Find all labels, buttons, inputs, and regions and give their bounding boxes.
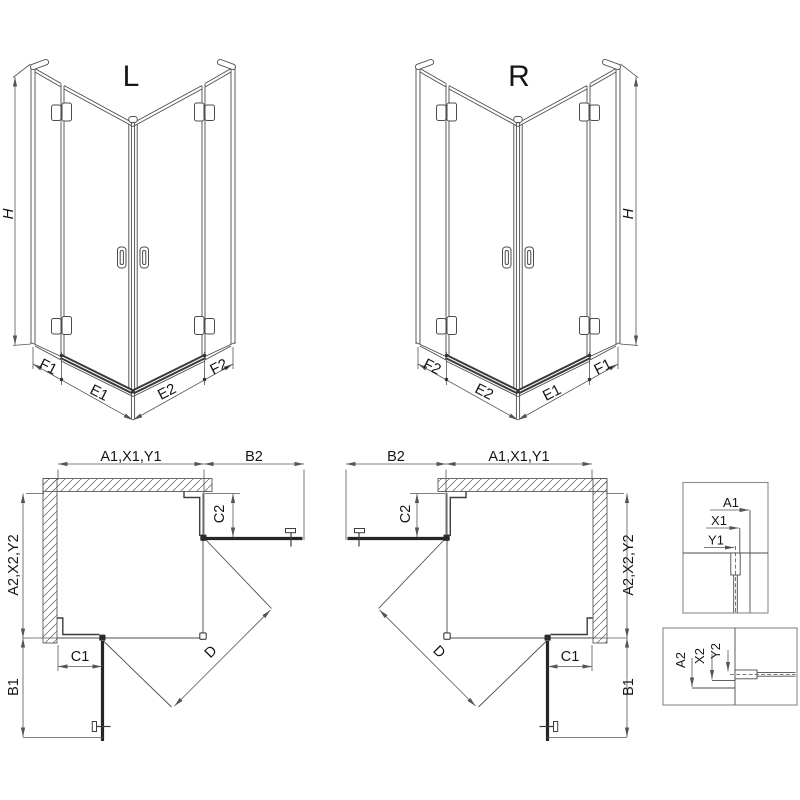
dim-label-f1-left: F1 bbox=[36, 355, 59, 378]
detail-dim-y1: Y1 bbox=[708, 533, 724, 548]
dim-label-f2-left: F2 bbox=[207, 355, 230, 378]
dim-label-f2-right: F2 bbox=[420, 355, 443, 378]
plan-view-left: A1,X1,Y1 B2 A2,X2,Y2 B1 C1 C2 D bbox=[6, 449, 304, 741]
dim-label-a2x2y2-plan-left: A2,X2,Y2 bbox=[6, 534, 22, 595]
dim-label-a2x2y2-plan-right: A2,X2,Y2 bbox=[621, 534, 637, 595]
iso-right-title: R bbox=[508, 60, 530, 93]
dim-label-c2-plan-right: C2 bbox=[398, 505, 414, 524]
detail-dim-x2: X2 bbox=[692, 648, 707, 664]
wall-side-left-plan bbox=[43, 479, 57, 644]
dim-label-height-right: H bbox=[620, 208, 637, 219]
dim-label-c1-plan-left: C1 bbox=[71, 649, 90, 665]
drawing-svg: L H F1 E1 E2 F2 R H F2 E2 E1 F1 A1,X1,Y1… bbox=[0, 0, 800, 800]
detail-dim-x1: X1 bbox=[711, 513, 727, 528]
dim-label-c2-plan-left: C2 bbox=[212, 505, 228, 524]
wall-top-right-plan bbox=[438, 479, 607, 492]
plan-left-geometry bbox=[23, 464, 304, 741]
iso-view-right: R H F2 E2 E1 F1 bbox=[415, 59, 638, 420]
dim-label-height-left: H bbox=[0, 208, 17, 219]
wall-side-right-plan bbox=[593, 479, 607, 644]
dim-label-b2-plan-left: B2 bbox=[245, 449, 263, 465]
dim-label-f1-right: F1 bbox=[591, 355, 614, 378]
dim-label-b1-plan-left: B1 bbox=[6, 678, 22, 696]
plan-right-geometry bbox=[346, 464, 627, 741]
wall-top-left-plan bbox=[43, 479, 212, 492]
detail-dim-a2: A2 bbox=[673, 652, 688, 668]
detail-dim-y2: Y2 bbox=[708, 643, 723, 659]
iso-view-left: L H F1 E1 E2 F2 bbox=[0, 59, 236, 420]
dim-label-e1-right: E1 bbox=[540, 381, 564, 404]
dim-label-b1-plan-right: B1 bbox=[621, 678, 637, 696]
dim-label-a1x1y1-plan-left: A1,X1,Y1 bbox=[100, 449, 161, 465]
detail-box-top: A1 X1 Y1 bbox=[683, 483, 768, 614]
dim-label-d-plan-left: D bbox=[202, 643, 221, 662]
shower-enclosure-technical-drawing: L H F1 E1 E2 F2 R H F2 E2 E1 F1 A1,X1,Y1… bbox=[0, 0, 800, 800]
dim-label-a1x1y1-plan-right: A1,X1,Y1 bbox=[488, 449, 549, 465]
detail-dim-a1: A1 bbox=[723, 495, 739, 510]
dim-label-c1-plan-right: C1 bbox=[561, 649, 580, 665]
dim-label-e1-left: E1 bbox=[87, 381, 111, 404]
dim-label-b2-plan-right: B2 bbox=[387, 449, 405, 465]
plan-view-right: B2 A1,X1,Y1 A2,X2,Y2 B1 C1 C2 D bbox=[346, 449, 637, 741]
dim-label-d-plan-right: D bbox=[429, 643, 448, 662]
iso-left-title: L bbox=[123, 60, 140, 93]
detail-box-bottom: A2 X2 Y2 bbox=[663, 628, 797, 705]
